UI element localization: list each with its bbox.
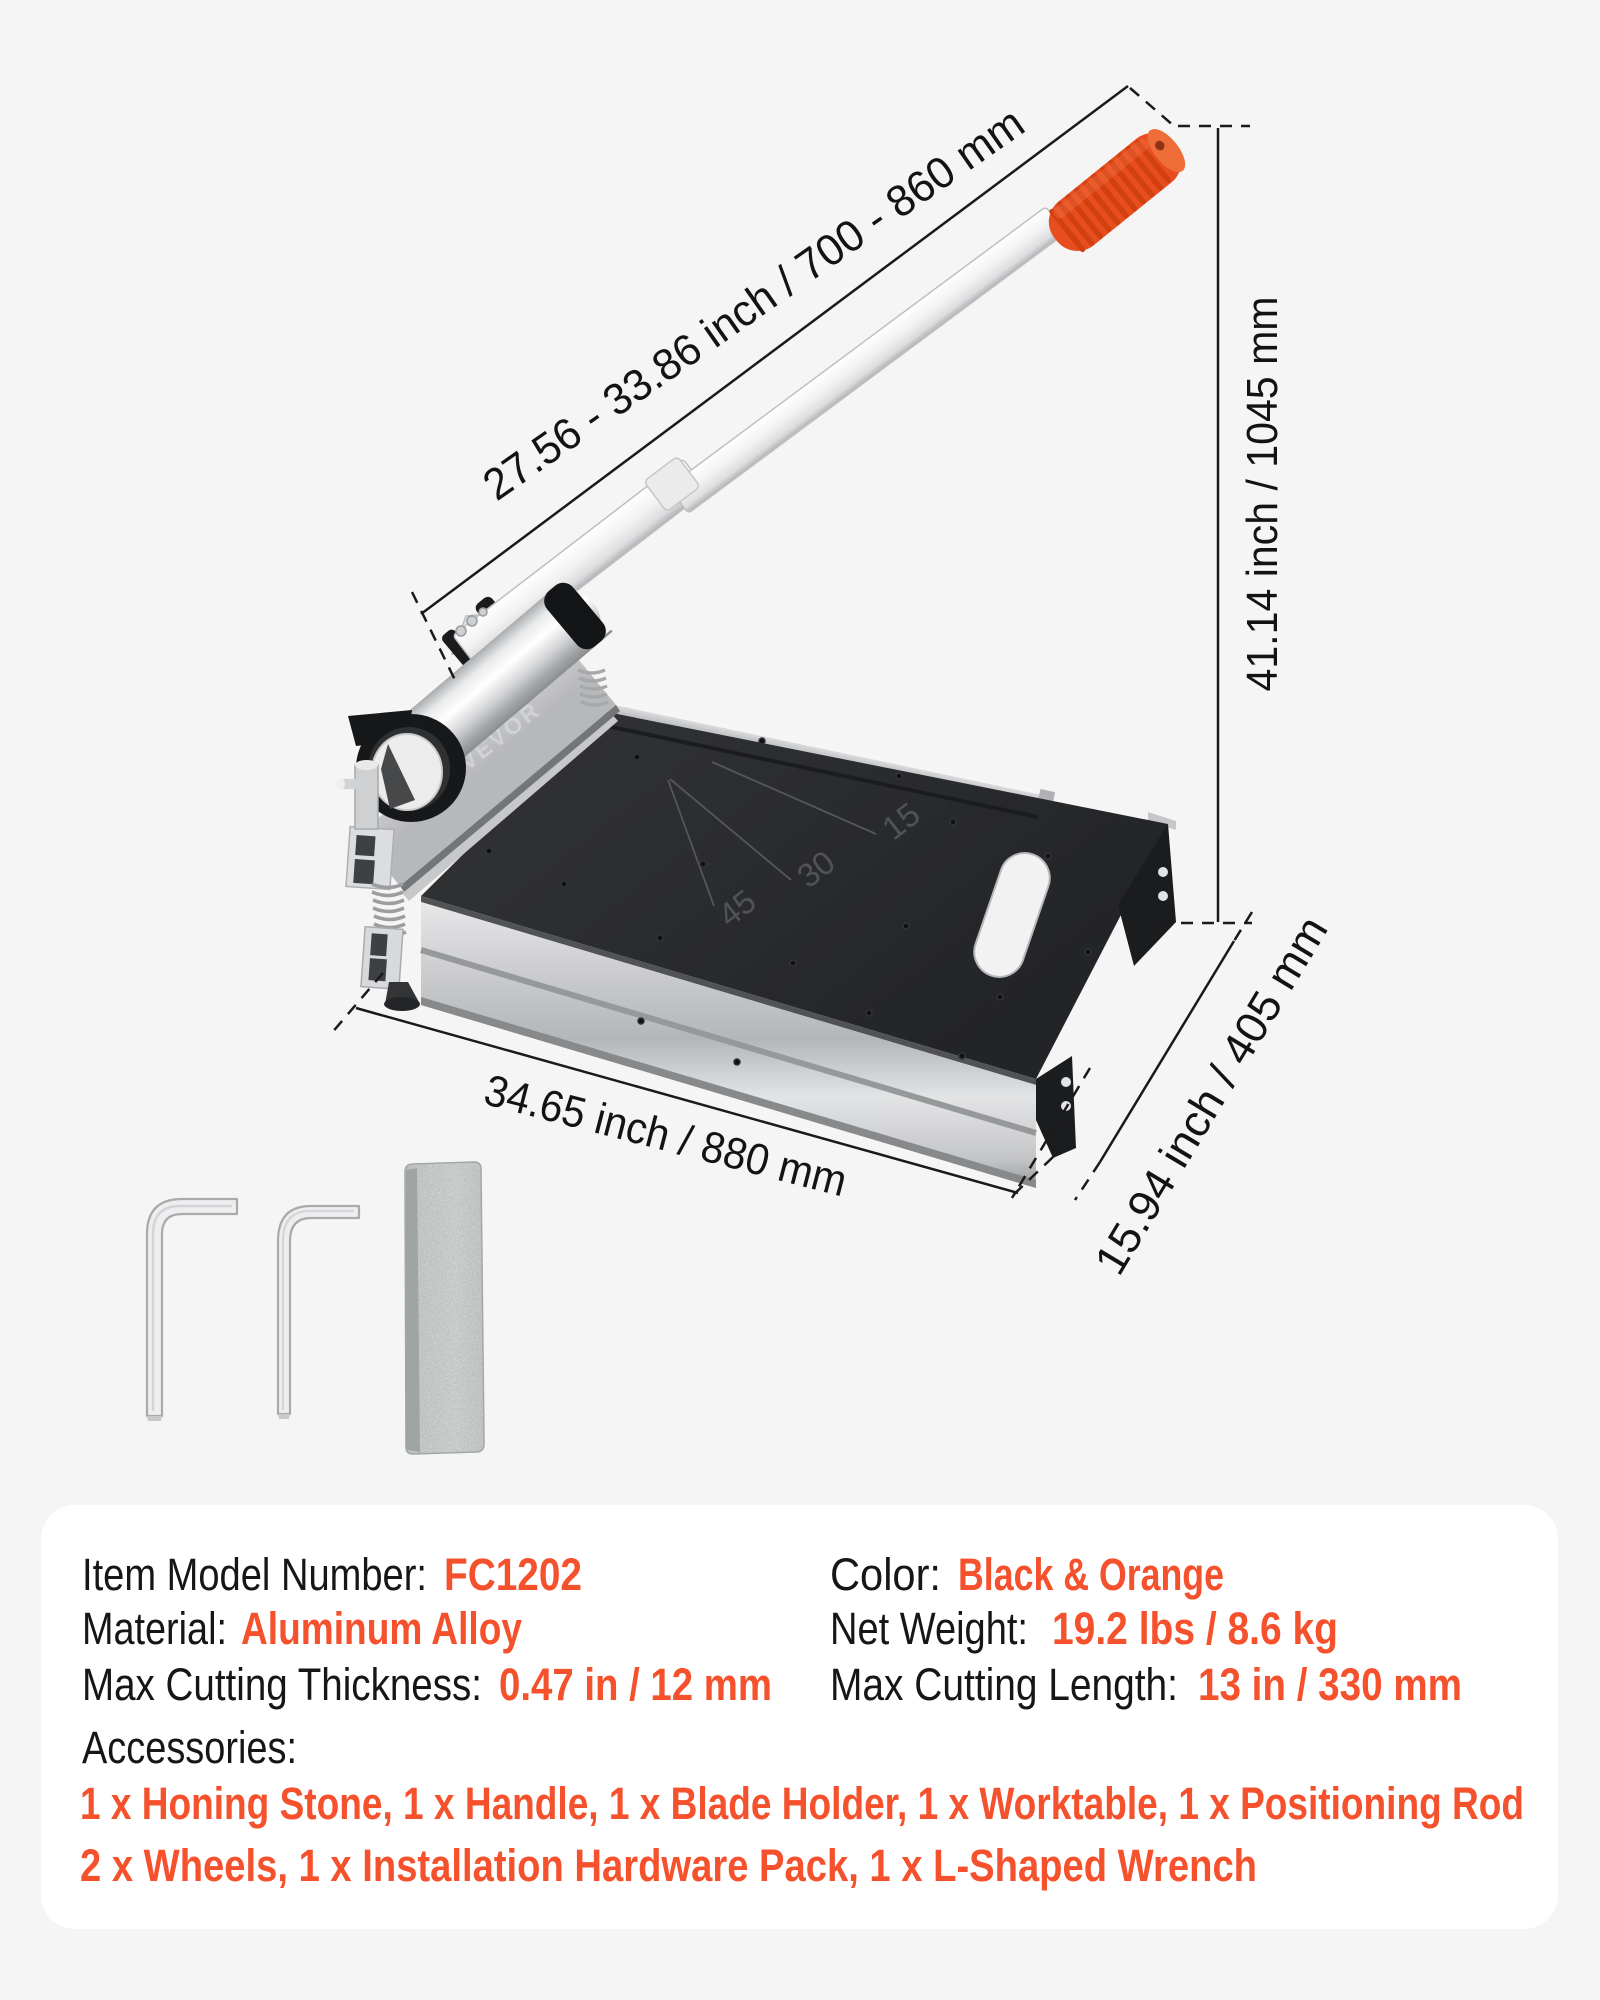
svg-text:41.14 inch / 1045 mm: 41.14 inch / 1045 mm <box>1238 297 1287 692</box>
svg-text:13 in / 330 mm: 13 in / 330 mm <box>1198 1659 1462 1710</box>
svg-text:FC1202: FC1202 <box>444 1549 582 1600</box>
svg-text:Item Model Number:: Item Model Number: <box>82 1549 427 1600</box>
svg-text:0.47 in / 12 mm: 0.47 in / 12 mm <box>499 1659 772 1710</box>
svg-text:2 x Wheels, 1 x Installation H: 2 x Wheels, 1 x Installation Hardware Pa… <box>80 1840 1257 1891</box>
svg-text:1 x Honing Stone, 1 x Handle,: 1 x Honing Stone, 1 x Handle, 1 x Blade … <box>80 1778 1524 1829</box>
svg-text:Black & Orange: Black & Orange <box>958 1549 1224 1600</box>
svg-text:Max Cutting Thickness:: Max Cutting Thickness: <box>82 1659 482 1710</box>
svg-text:Color:: Color: <box>830 1549 941 1600</box>
svg-text:Net Weight:: Net Weight: <box>830 1603 1028 1654</box>
svg-text:Material:: Material: <box>82 1603 227 1654</box>
svg-text:Accessories:: Accessories: <box>82 1722 297 1773</box>
svg-text:19.2 lbs / 8.6 kg: 19.2 lbs / 8.6 kg <box>1052 1603 1338 1654</box>
svg-text:Max Cutting Length:: Max Cutting Length: <box>830 1659 1178 1710</box>
svg-text:Aluminum Alloy: Aluminum Alloy <box>241 1603 522 1654</box>
svg-text:15.94 inch / 405 mm: 15.94 inch / 405 mm <box>1086 908 1338 1283</box>
